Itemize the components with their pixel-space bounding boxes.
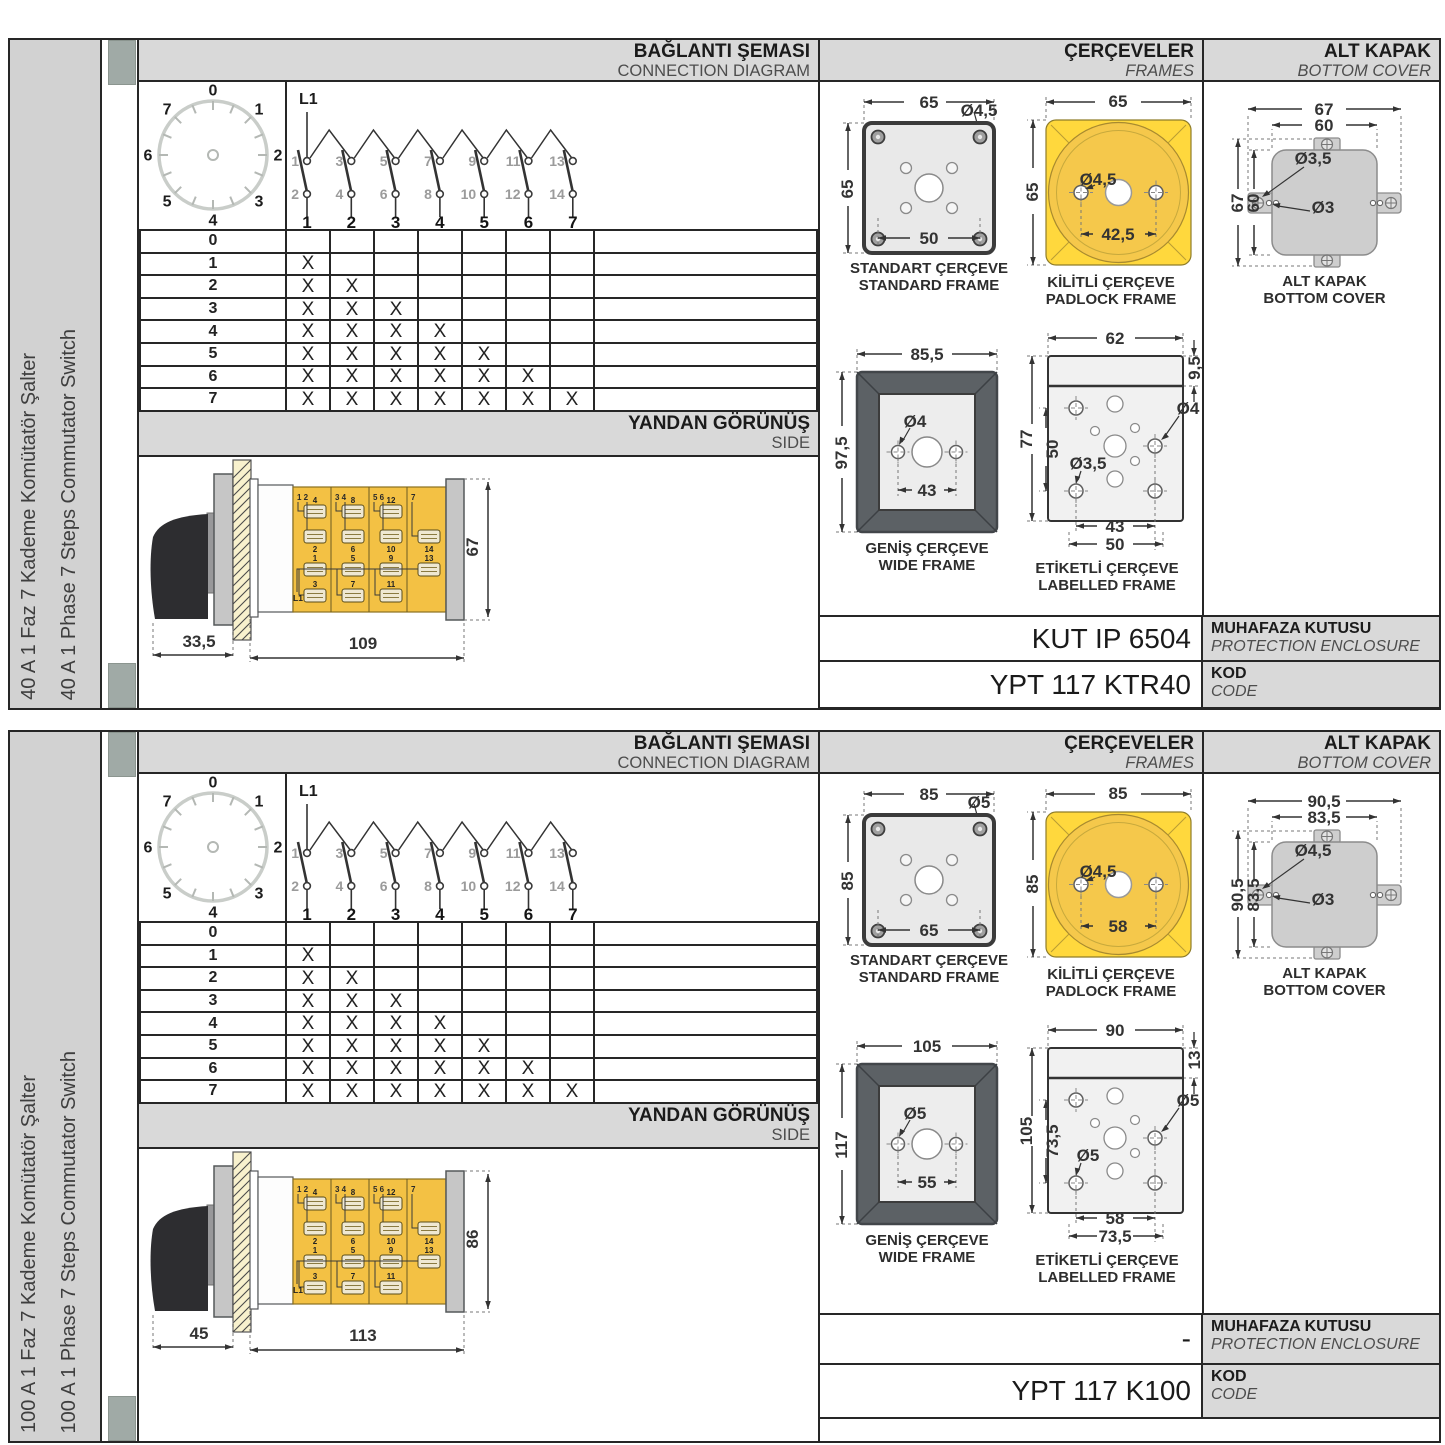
contact-mark-cell: X — [462, 343, 506, 366]
svg-text:12: 12 — [387, 1188, 396, 1197]
product-title-en: 100 A 1 Phase 7 Steps Commutator Switch — [58, 1051, 81, 1433]
header-bottom-cover: ALT KAPAK BOTTOM COVER — [1202, 40, 1439, 80]
dim-front-depth: 45 — [169, 1324, 229, 1344]
contact-mark-cell: X — [330, 343, 374, 366]
header-connection-diagram: BAĞLANTI ŞEMASI CONNECTION DIAGRAM — [139, 40, 818, 80]
dim-body-height: 86 — [463, 1217, 483, 1261]
contact-mark-cell — [374, 253, 418, 276]
contact-mark-cell: X — [286, 253, 330, 276]
filler-cell — [594, 922, 817, 945]
padlock-frame-caption: KİLİTLİ ÇERÇEVE PADLOCK FRAME — [1021, 966, 1201, 1000]
contact-mark-cell — [550, 1058, 594, 1081]
svg-text:7: 7 — [351, 1272, 356, 1281]
header-connection-en: CONNECTION DIAGRAM — [139, 754, 810, 772]
step-label: 3 — [140, 990, 286, 1013]
contact-mark-cell — [374, 945, 418, 968]
svg-text:13: 13 — [425, 1246, 434, 1255]
svg-text:5 6: 5 6 — [373, 493, 385, 502]
svg-text:1: 1 — [255, 794, 264, 811]
code-label: KOD CODE — [1201, 1365, 1439, 1417]
svg-text:11: 11 — [506, 153, 521, 169]
svg-text:L1: L1 — [299, 783, 318, 800]
contact-mark-cell — [462, 990, 506, 1013]
dim-labelled-width: 90 — [1093, 1021, 1137, 1041]
svg-text:8: 8 — [424, 186, 432, 202]
binder-square-top — [108, 732, 136, 777]
step-label: 5 — [140, 1035, 286, 1058]
caption-en: STANDARD FRAME — [834, 969, 1024, 986]
code-label-tr: KOD — [1211, 664, 1439, 683]
binder-square-bottom — [108, 663, 136, 708]
connection-diagram-cell: L112134256378491051112613147 — [287, 82, 818, 229]
table-row: 6XXXXXX — [140, 366, 817, 389]
product-panel-40a: 40 A 1 Faz 7 Kademe Komütatör Şalter 40 … — [8, 38, 1441, 710]
contact-mark-cell: X — [374, 343, 418, 366]
svg-text:1: 1 — [291, 845, 299, 861]
svg-text:12: 12 — [505, 878, 521, 894]
enclosure-label: MUHAFAZA KUTUSU PROTECTION ENCLOSURE — [1201, 1315, 1439, 1363]
dim-cover-tab-hole: Ø4,5 — [1288, 841, 1338, 861]
step-label: 3 — [140, 298, 286, 321]
svg-text:10: 10 — [387, 545, 396, 554]
contact-mark-cell — [374, 275, 418, 298]
dim-body-length: 109 — [318, 634, 408, 654]
dim-labelled-dia-left: Ø3,5 — [1063, 454, 1113, 474]
enclosure-code-value: KUT IP 6504 — [818, 617, 1201, 660]
enclosure-label-tr: MUHAFAZA KUTUSU — [1211, 619, 1439, 638]
svg-text:13: 13 — [549, 845, 565, 861]
svg-text:13: 13 — [549, 153, 565, 169]
svg-text:1: 1 — [302, 905, 311, 921]
svg-text:11: 11 — [387, 1272, 396, 1281]
contact-mark-cell — [286, 922, 330, 945]
contact-mark-cell — [374, 922, 418, 945]
table-row: 1X — [140, 945, 817, 968]
product-code-value: YPT 117 KTR40 — [818, 662, 1201, 707]
contact-mark-cell — [462, 945, 506, 968]
product-code-value: YPT 117 K100 — [818, 1365, 1201, 1417]
header-connection-en: CONNECTION DIAGRAM — [139, 62, 810, 80]
svg-text:L1: L1 — [293, 1285, 303, 1295]
wide-frame-block: 105 117 Ø5 55 GENİŞ ÇERÇEVE WIDE FRAME — [832, 1034, 1022, 1289]
caption-tr: GENİŞ ÇERÇEVE — [832, 1232, 1022, 1249]
section-headers: BAĞLANTI ŞEMASI CONNECTION DIAGRAM ÇERÇE… — [139, 732, 1439, 774]
contact-mark-cell — [418, 298, 462, 321]
header-connection-tr: BAĞLANTI ŞEMASI — [139, 733, 810, 754]
header-cover-tr: ALT KAPAK — [1204, 733, 1431, 754]
bottom-cover-block: 90,5 83,5 90,5 83,5 Ø4,5 Ø3 ALT KAPAK BO… — [1222, 787, 1427, 1017]
svg-text:3: 3 — [313, 1272, 318, 1281]
side-header-en: SIDE — [139, 1126, 810, 1144]
table-row: 3XXX — [140, 298, 817, 321]
contact-mark-cell — [418, 275, 462, 298]
header-connection-diagram: BAĞLANTI ŞEMASI CONNECTION DIAGRAM — [139, 732, 818, 772]
table-row: 4XXXX — [140, 1012, 817, 1035]
header-frames-tr: ÇERÇEVELER — [820, 733, 1194, 754]
header-cover-en: BOTTOM COVER — [1204, 62, 1431, 80]
dim-labelled-height: 105 — [1017, 1109, 1037, 1153]
caption-en: PADLOCK FRAME — [1021, 983, 1201, 1000]
contact-mark-cell — [418, 967, 462, 990]
contact-mark-cell — [550, 230, 594, 253]
dim-wide-hole-dia: Ø5 — [890, 1104, 940, 1124]
svg-text:11: 11 — [387, 580, 396, 589]
contact-mark-cell: X — [418, 343, 462, 366]
wide-frame-caption: GENİŞ ÇERÇEVE WIDE FRAME — [832, 1232, 1022, 1266]
contact-mark-cell: X — [374, 1012, 418, 1035]
contact-mark-cell: X — [418, 1080, 462, 1103]
contact-mark-cell: X — [374, 1058, 418, 1081]
code-label-en: CODE — [1211, 683, 1439, 701]
svg-text:5: 5 — [380, 153, 388, 169]
dim-padlock-height: 65 — [1023, 170, 1043, 214]
contact-mark-cell: X — [330, 275, 374, 298]
enclosure-row: KUT IP 6504 MUHAFAZA KUTUSU PROTECTION E… — [818, 617, 1439, 662]
filler-cell — [594, 298, 817, 321]
svg-text:1: 1 — [313, 1246, 318, 1255]
svg-text:7: 7 — [424, 845, 432, 861]
contact-mark-cell: X — [286, 1058, 330, 1081]
step-label: 0 — [140, 922, 286, 945]
dim-labelled-holes-inner: 43 — [1093, 517, 1137, 537]
dim-standard-holes: 65 — [907, 921, 951, 941]
contact-mark-cell — [550, 1012, 594, 1035]
main-area: BAĞLANTI ŞEMASI CONNECTION DIAGRAM ÇERÇE… — [137, 732, 1439, 1441]
side-header-tr: YANDAN GÖRÜNÜŞ — [139, 1105, 810, 1126]
svg-text:7: 7 — [568, 213, 577, 229]
svg-text:14: 14 — [549, 878, 565, 894]
dim-wide-height: 97,5 — [832, 431, 852, 475]
code-row: YPT 117 K100 KOD CODE — [818, 1365, 1439, 1419]
dim-wide-holes: 43 — [905, 481, 949, 501]
contact-mark-cell: X — [330, 1035, 374, 1058]
contact-mark-cell: X — [330, 1012, 374, 1035]
contact-mark-cell: X — [286, 320, 330, 343]
dim-cover-inner-height: 60 — [1244, 181, 1264, 225]
caption-en: PADLOCK FRAME — [1021, 291, 1201, 308]
contact-mark-cell — [418, 230, 462, 253]
contact-mark-cell — [418, 253, 462, 276]
svg-text:11: 11 — [506, 845, 521, 861]
svg-text:4: 4 — [435, 213, 445, 229]
contact-mark-cell: X — [462, 366, 506, 389]
contact-mark-cell — [462, 922, 506, 945]
dim-cover-inner-width: 60 — [1302, 116, 1346, 136]
contact-mark-cell — [506, 1012, 550, 1035]
step-label: 2 — [140, 967, 286, 990]
contact-mark-cell — [330, 945, 374, 968]
contact-mark-cell — [550, 253, 594, 276]
labelled-frame-caption: ETİKETLİ ÇERÇEVE LABELLED FRAME — [1013, 1252, 1201, 1286]
svg-text:1: 1 — [302, 213, 311, 229]
dim-labelled-holes-outer: 50 — [1093, 535, 1137, 555]
side-view-area: 1 242133 486575 6121091171413L1 45 113 8… — [139, 1149, 818, 1441]
dim-labelled-holes-inner: 58 — [1093, 1209, 1137, 1229]
contact-mark-cell — [550, 320, 594, 343]
padlock-frame-block: 85 85 Ø4,5 58 KİLİTLİ ÇERÇEVE PADLOCK FR… — [1021, 780, 1201, 1035]
caption-tr: ETİKETLİ ÇERÇEVE — [1013, 560, 1201, 577]
caption-tr: STANDART ÇERÇEVE — [834, 952, 1024, 969]
rotary-dial-drawing: 01234567 — [139, 82, 287, 229]
rotary-dial-cell: 01234567 — [139, 82, 287, 229]
caption-en: LABELLED FRAME — [1013, 1269, 1201, 1286]
svg-text:10: 10 — [461, 878, 477, 894]
svg-text:6: 6 — [380, 878, 388, 894]
svg-text:3: 3 — [391, 213, 400, 229]
contact-mark-cell: X — [286, 990, 330, 1013]
caption-en: LABELLED FRAME — [1013, 577, 1201, 594]
contact-mark-cell: X — [506, 1080, 550, 1103]
table-row: 5XXXXX — [140, 343, 817, 366]
contact-mark-cell — [462, 275, 506, 298]
caption-en: WIDE FRAME — [832, 557, 1022, 574]
svg-text:3: 3 — [391, 905, 400, 921]
dim-wide-height: 117 — [832, 1123, 852, 1167]
step-label: 6 — [140, 1058, 286, 1081]
contact-mark-cell: X — [330, 298, 374, 321]
section-headers: BAĞLANTI ŞEMASI CONNECTION DIAGRAM ÇERÇE… — [139, 40, 1439, 82]
filler-cell — [594, 1080, 817, 1103]
svg-text:6: 6 — [351, 1237, 356, 1246]
svg-text:6: 6 — [524, 213, 533, 229]
caption-en: BOTTOM COVER — [1222, 290, 1427, 307]
svg-text:2: 2 — [347, 905, 356, 921]
svg-text:1 2: 1 2 — [297, 1185, 309, 1194]
contact-mark-cell: X — [286, 1012, 330, 1035]
contact-mark-cell — [550, 990, 594, 1013]
svg-text:5: 5 — [351, 554, 356, 563]
svg-text:12: 12 — [505, 186, 521, 202]
dim-padlock-holes: 58 — [1096, 917, 1140, 937]
svg-text:3: 3 — [313, 580, 318, 589]
caption-tr: STANDART ÇERÇEVE — [834, 260, 1024, 277]
filler-cell — [594, 253, 817, 276]
svg-text:2: 2 — [313, 1237, 318, 1246]
contact-mark-cell: X — [286, 343, 330, 366]
binder-square-bottom — [108, 1396, 136, 1441]
contact-mark-cell: X — [462, 1080, 506, 1103]
filler-cell — [594, 1012, 817, 1035]
svg-text:8: 8 — [351, 1188, 356, 1197]
enclosure-label: MUHAFAZA KUTUSU PROTECTION ENCLOSURE — [1201, 617, 1439, 660]
svg-text:14: 14 — [549, 186, 565, 202]
code-label-tr: KOD — [1211, 1367, 1439, 1386]
contact-mark-cell — [550, 298, 594, 321]
contact-mark-cell: X — [330, 320, 374, 343]
contact-mark-cell: X — [330, 990, 374, 1013]
contact-mark-cell — [506, 1035, 550, 1058]
contact-mark-cell — [506, 343, 550, 366]
contact-mark-cell — [418, 922, 462, 945]
contact-mark-cell: X — [462, 1035, 506, 1058]
svg-text:5 6: 5 6 — [373, 1185, 385, 1194]
product-title-tr: 40 A 1 Faz 7 Kademe Komütatör Şalter — [18, 353, 41, 700]
svg-text:9: 9 — [468, 153, 476, 169]
dim-labelled-dia-right: Ø5 — [1163, 1091, 1213, 1111]
code-row: YPT 117 KTR40 KOD CODE — [818, 662, 1439, 709]
header-cover-tr: ALT KAPAK — [1204, 41, 1431, 62]
table-row: 7XXXXXXX — [140, 388, 817, 411]
table-row: 2XX — [140, 967, 817, 990]
filler-cell — [594, 366, 817, 389]
contact-mark-cell: X — [506, 388, 550, 411]
svg-text:3: 3 — [255, 885, 264, 902]
svg-text:L1: L1 — [299, 91, 318, 108]
contact-mark-cell: X — [286, 945, 330, 968]
table-row: 2XX — [140, 275, 817, 298]
header-bottom-cover: ALT KAPAK BOTTOM COVER — [1202, 732, 1439, 772]
enclosure-row: - MUHAFAZA KUTUSU PROTECTION ENCLOSURE — [818, 1315, 1439, 1365]
svg-text:1: 1 — [255, 102, 264, 119]
contact-mark-cell — [506, 922, 550, 945]
code-label: KOD CODE — [1201, 662, 1439, 707]
svg-text:6: 6 — [524, 905, 533, 921]
dim-standard-hole-dia: Ø4,5 — [952, 101, 1006, 121]
svg-text:0: 0 — [209, 775, 218, 792]
contact-mark-cell — [462, 1012, 506, 1035]
bottom-cover-caption: ALT KAPAK BOTTOM COVER — [1222, 273, 1427, 307]
svg-text:1: 1 — [291, 153, 299, 169]
dim-labelled-strip: 9,5 — [1185, 348, 1205, 388]
contact-mark-cell: X — [286, 1035, 330, 1058]
table-row: 6XXXXXX — [140, 1058, 817, 1081]
contact-mark-cell: X — [462, 1058, 506, 1081]
svg-text:14: 14 — [425, 545, 434, 554]
svg-text:2: 2 — [274, 840, 283, 857]
dim-cover-inner-height: 83,5 — [1244, 873, 1264, 917]
svg-text:2: 2 — [347, 213, 356, 229]
svg-text:2: 2 — [291, 186, 299, 202]
dim-wide-holes: 55 — [905, 1173, 949, 1193]
rotary-dial-cell: 01234567 — [139, 774, 287, 921]
filler-cell — [594, 1035, 817, 1058]
dim-cover-tab-hole: Ø3,5 — [1288, 149, 1338, 169]
dim-wide-width: 105 — [905, 1037, 949, 1057]
dim-standard-height: 85 — [838, 859, 858, 903]
dim-standard-width: 85 — [907, 785, 951, 805]
svg-text:7: 7 — [424, 153, 432, 169]
switching-table: 01X2XX3XXX4XXXX5XXXXX6XXXXXX7XXXXXXX — [139, 229, 818, 412]
table-row: 3XXX — [140, 990, 817, 1013]
dim-padlock-hole-dia: Ø4,5 — [1073, 862, 1123, 882]
svg-text:2: 2 — [274, 148, 283, 165]
side-header-tr: YANDAN GÖRÜNÜŞ — [139, 413, 810, 434]
standard-frame-block: 65 Ø4,5 65 50 STANDART ÇERÇEVE STANDARD … — [834, 88, 1024, 338]
sidebar: 100 A 1 Faz 7 Kademe Komütatör Şalter 10… — [10, 732, 102, 1441]
standard-frame-drawing — [834, 88, 1024, 338]
filler-cell — [594, 990, 817, 1013]
contact-mark-cell — [506, 253, 550, 276]
dim-cover-small-hole: Ø3 — [1298, 198, 1348, 218]
bottom-cover-block: 67 60 67 60 Ø3,5 Ø3 ALT KAPAK BOTTOM COV… — [1222, 95, 1427, 325]
dim-padlock-width: 85 — [1096, 784, 1140, 804]
connection-diagram-cell: L112134256378491051112613147 — [287, 774, 818, 921]
svg-text:6: 6 — [351, 545, 356, 554]
svg-text:7: 7 — [568, 905, 577, 921]
contact-mark-cell: X — [418, 1058, 462, 1081]
contact-mark-cell: X — [550, 1080, 594, 1103]
svg-text:7: 7 — [351, 580, 356, 589]
contact-mark-cell — [550, 945, 594, 968]
table-row: 5XXXXX — [140, 1035, 817, 1058]
contact-mark-cell — [286, 230, 330, 253]
contact-mark-cell — [462, 230, 506, 253]
contact-mark-cell: X — [506, 366, 550, 389]
standard-frame-drawing — [834, 780, 1024, 1030]
contact-mark-cell — [550, 275, 594, 298]
contact-mark-cell: X — [418, 320, 462, 343]
svg-text:8: 8 — [351, 496, 356, 505]
svg-text:4: 4 — [336, 186, 344, 202]
svg-text:4: 4 — [209, 905, 218, 922]
side-header-en: SIDE — [139, 434, 810, 452]
svg-text:2: 2 — [313, 545, 318, 554]
labelled-frame-block: 62 9,5 77 50 Ø4 Ø3,5 43 50 ETİKETLİ ÇERÇ… — [1013, 328, 1201, 618]
filler-cell — [594, 1058, 817, 1081]
dim-labelled-dia-left: Ø5 — [1063, 1146, 1113, 1166]
filler-cell — [594, 967, 817, 990]
contact-mark-cell — [462, 320, 506, 343]
svg-text:3: 3 — [336, 153, 344, 169]
dim-labelled-inner-height: 50 — [1043, 427, 1063, 471]
switching-table: 01X2XX3XXX4XXXX5XXXXX6XXXXXX7XXXXXXX — [139, 921, 818, 1104]
caption-tr: GENİŞ ÇERÇEVE — [832, 540, 1022, 557]
table-row: 0 — [140, 230, 817, 253]
contact-mark-cell — [550, 343, 594, 366]
contact-mark-cell: X — [286, 1080, 330, 1103]
svg-text:7: 7 — [163, 794, 172, 811]
header-frames-en: FRAMES — [820, 754, 1194, 772]
contact-mark-cell: X — [330, 1058, 374, 1081]
header-frames: ÇERÇEVELER FRAMES — [818, 732, 1202, 772]
caption-tr: ALT KAPAK — [1222, 273, 1427, 290]
contact-mark-cell — [550, 967, 594, 990]
contact-mark-cell — [374, 967, 418, 990]
wide-frame-block: 85,5 97,5 Ø4 43 GENİŞ ÇERÇEVE WIDE FRAME — [832, 342, 1022, 597]
enclosure-code-value: - — [818, 1315, 1201, 1363]
svg-text:5: 5 — [163, 885, 172, 902]
connection-diagram-drawing: L112134256378491051112613147 — [287, 774, 818, 921]
filler-cell — [594, 275, 817, 298]
svg-text:4: 4 — [313, 1188, 318, 1197]
dim-labelled-holes-outer: 73,5 — [1093, 1227, 1137, 1247]
contact-mark-cell: X — [286, 366, 330, 389]
svg-text:1 2: 1 2 — [297, 493, 309, 502]
sidebar: 40 A 1 Faz 7 Kademe Komütatör Şalter 40 … — [10, 40, 102, 708]
svg-text:7: 7 — [411, 1185, 416, 1194]
header-cover-en: BOTTOM COVER — [1204, 754, 1431, 772]
dim-front-depth: 33,5 — [169, 632, 229, 652]
svg-text:14: 14 — [425, 1237, 434, 1246]
filler-cell — [594, 388, 817, 411]
dim-body-height: 67 — [463, 525, 483, 569]
svg-text:3: 3 — [336, 845, 344, 861]
svg-text:10: 10 — [461, 186, 477, 202]
contact-mark-cell — [462, 253, 506, 276]
dim-standard-width: 65 — [907, 93, 951, 113]
caption-tr: KİLİTLİ ÇERÇEVE — [1021, 966, 1201, 983]
standard-frame-caption: STANDART ÇERÇEVE STANDARD FRAME — [834, 952, 1024, 986]
contact-mark-cell: X — [462, 388, 506, 411]
svg-text:9: 9 — [389, 1246, 394, 1255]
dim-standard-holes: 50 — [907, 229, 951, 249]
product-panel-100a: 100 A 1 Faz 7 Kademe Komütatör Şalter 10… — [8, 730, 1441, 1443]
svg-text:8: 8 — [424, 878, 432, 894]
svg-text:4: 4 — [209, 213, 218, 230]
contact-mark-cell — [506, 320, 550, 343]
contact-mark-cell: X — [418, 1035, 462, 1058]
code-label-en: CODE — [1211, 1386, 1439, 1404]
